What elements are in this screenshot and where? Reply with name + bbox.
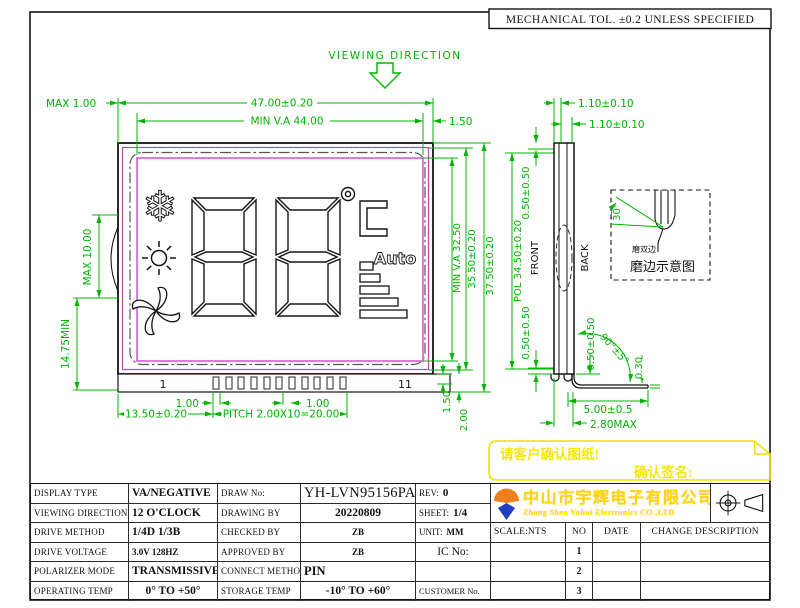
rev-cell: REV: 0 (416, 484, 491, 504)
sheet-cell: SHEET: 1/4 (416, 504, 491, 524)
confirm-line1: 请客户确认图纸! (500, 446, 599, 462)
display-type-value: VA/NEGATIVE (129, 484, 218, 504)
scale-cell: SCALE:NTS (491, 523, 566, 543)
company-name-cn: 中山市宇辉电子有限公司 (523, 490, 711, 508)
confirm-callout: 请客户确认图纸! 确认签名: (489, 441, 770, 480)
display-type-label: DISPLAY TYPE (31, 484, 129, 504)
dim-total-height: 37.50±0.20 (485, 236, 496, 295)
approved-by-label: APPROVED BY (218, 543, 301, 563)
draw-no-label: DRAW No: (218, 484, 301, 504)
rev-row3-scale (491, 582, 566, 602)
tolerance-note: MECHANICAL TOL. ±0.2 UNLESS SPECIFIED (506, 14, 754, 26)
checked-by-label: CHECKED BY (218, 523, 301, 543)
dim-pitch: PITCH 2.00X10=20.00 (223, 409, 340, 421)
storage-temp-value: -10° TO +60° (301, 582, 416, 602)
dim-ledge-b: 2.00 (459, 409, 470, 431)
glass-edge-section (655, 190, 675, 252)
dim-va-width: MIN V.A 44.00 (250, 116, 323, 128)
rev-col-date-header: DATE (593, 523, 641, 543)
dim-glass-a: 1.10±0.10 (578, 98, 634, 110)
sheet-value: 1/4 (453, 507, 467, 519)
unit-cell: UNIT: MM (416, 523, 491, 543)
drive-voltage-value: 3.0V 128HZ (129, 543, 218, 563)
rev-row1-scale (491, 543, 566, 563)
dim-right-gap: 1.50 (449, 116, 472, 128)
viewing-direction: VIEWING DIRECTION (328, 50, 461, 88)
rev-row1-date (593, 543, 641, 563)
viewing-direction-arrow-icon (370, 63, 400, 88)
detail-angle: 30° (612, 203, 623, 221)
draw-no-value: YH-LVN95156PA (301, 484, 416, 504)
sheet-label: SHEET: (419, 508, 449, 518)
drawing-by-label: DRAWING BY (218, 504, 301, 524)
connect-method-value: PIN (301, 562, 416, 582)
edge-arc (111, 227, 118, 291)
unit-label: UNIT: (419, 527, 443, 537)
operating-temp-label: OPERATING TEMP (31, 582, 129, 602)
blank-cell (416, 562, 491, 582)
dim-va-height: MIN V.A 32.50 (452, 223, 463, 293)
checked-by-value: ZB (301, 523, 416, 543)
logo-diamond-shape (498, 503, 515, 520)
dim-pin-w-right: 1.00 (306, 398, 329, 410)
dim-step-bottom: 0.50±0.50 (521, 307, 532, 360)
dim-ledge-a: 1.50 (442, 391, 453, 413)
dim-pin-length: 5.00±0.5 (584, 404, 633, 416)
pin-number-last: 11 (398, 378, 412, 391)
detail-caption: 磨边示意图 (630, 259, 695, 275)
auto-label: Auto (374, 249, 416, 268)
company-cell: 中山市宇辉电子有限公司 Zhong Shen Yuhui Electronics… (491, 484, 711, 523)
rev-row2-no: 2 (566, 562, 593, 582)
dim-pin-offset: 13.50±0.20 (125, 409, 187, 421)
dim-pin-thickness: 0.30 (634, 357, 645, 379)
front-label: FRONT (530, 240, 541, 275)
unit-value: MM (447, 527, 464, 537)
company-name-en: Zhong Shen Yuhui Electronics CO.,LTD (523, 508, 711, 517)
detail-view: 30° 磨双边 磨边示意图 (611, 190, 710, 280)
pin-number-first: 1 (160, 378, 167, 391)
polarizer-mode-label: POLARIZER MODE (31, 562, 129, 582)
tolerance-box: MECHANICAL TOL. ±0.2 UNLESS SPECIFIED (489, 9, 771, 29)
operating-temp-value: 0° TO +50° (129, 582, 218, 602)
rev-col-no-header: NO (566, 523, 593, 543)
connect-method-label: CONNECT METHOD (218, 562, 301, 582)
drawing-sheet: MECHANICAL TOL. ±0.2 UNLESS SPECIFIED VI… (0, 0, 800, 608)
viewing-direction-value: 12 O'CLOCK (129, 504, 218, 524)
rev-row1-change (641, 543, 769, 563)
drive-method-value: 1/4D 1/3B (129, 523, 218, 543)
back-label: BACK (580, 244, 591, 272)
projection-symbol-cell (711, 484, 769, 523)
dim-pin-w-left: 1.00 (176, 398, 199, 410)
dim-pol-height: POL 34.50±0.20 (513, 220, 524, 302)
rev-row2-scale (491, 562, 566, 582)
front-view: 1 11 ❄ (111, 143, 450, 392)
dim-mid-height: 35.50±0.20 (467, 229, 478, 288)
confirm-line2: 确认签名: (634, 464, 693, 480)
storage-temp-label: STORAGE TEMP (218, 582, 301, 602)
viewing-direction-label: VIEWING DIRECTION (328, 50, 461, 62)
logo-fan-shape (494, 489, 519, 503)
snowflake-icon: ❄ (142, 185, 177, 231)
dim-glass-b: 1.10±0.10 (589, 119, 645, 131)
customer-no-cell: CUSTOMER No. (416, 582, 491, 602)
drawing-by-value: 20220809 (301, 504, 416, 524)
approved-by-value: ZB (301, 543, 416, 563)
rev-row1-no: 1 (566, 543, 593, 563)
polarizer-mode-value: TRANSMISSIVE (129, 562, 218, 582)
rev-label: REV: (419, 488, 439, 498)
dim-left-max: MAX 10.00 (82, 229, 94, 286)
projection-symbol-icon (714, 486, 766, 520)
dim-left-min: 14.75MIN (60, 319, 72, 369)
title-block: DISPLAY TYPE VA/NEGATIVE DRAW No: YH-LVN… (30, 483, 770, 600)
dim-width: 47.00±0.20 (251, 98, 313, 110)
rev-row3-change (641, 582, 769, 602)
dim-step-top: 0.50±0.50 (521, 167, 532, 220)
viewing-direction-row-label: VIEWING DIRECTION (31, 504, 129, 524)
drive-voltage-label: DRIVE VOLTAGE (31, 543, 129, 563)
drive-method-label: DRIVE METHOD (31, 523, 129, 543)
rev-row2-date (593, 562, 641, 582)
dim-step-right: 0.50±0.50 (586, 318, 597, 371)
ic-no-cell: IC No: (416, 543, 491, 563)
dim-bend-angle: 90°±5° (597, 332, 630, 367)
rev-row3-no: 3 (566, 582, 593, 602)
company-logo (493, 485, 520, 521)
rev-row3-date (593, 582, 641, 602)
detail-note: 磨双边 (632, 244, 656, 254)
rev-row2-change (641, 562, 769, 582)
rev-col-change-header: CHANGE DESCRIPTION (641, 523, 769, 543)
dim-max-thickness: 2.80MAX (590, 419, 637, 431)
rev-value: 0 (443, 487, 449, 499)
dim-edge-max: MAX 1.00 (46, 98, 96, 110)
